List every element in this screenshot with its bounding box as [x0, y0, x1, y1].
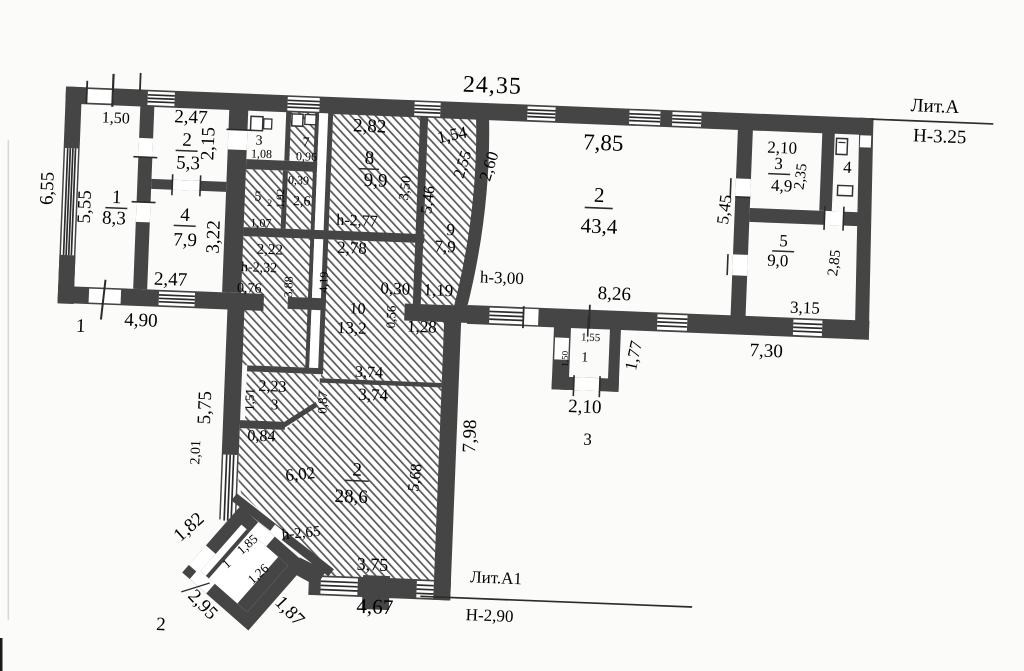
- svg-text:2: 2: [352, 460, 362, 481]
- svg-text:1,50: 1,50: [559, 350, 570, 367]
- svg-text:2,01: 2,01: [188, 440, 204, 465]
- svg-text:3,75: 3,75: [356, 554, 388, 575]
- svg-text:2,10: 2,10: [568, 396, 602, 418]
- svg-text:8,26: 8,26: [597, 283, 631, 305]
- svg-text:0,87: 0,87: [314, 390, 330, 414]
- svg-text:4: 4: [180, 205, 191, 226]
- svg-text:13,2: 13,2: [337, 318, 367, 338]
- svg-text:7,98: 7,98: [459, 419, 481, 453]
- svg-text:3,88: 3,88: [281, 276, 296, 298]
- svg-text:5,75: 5,75: [194, 391, 216, 425]
- svg-text:1,55: 1,55: [581, 331, 601, 344]
- svg-text:7,85: 7,85: [583, 129, 624, 156]
- svg-text:2,47: 2,47: [154, 269, 188, 291]
- svg-text:4: 4: [843, 158, 853, 177]
- svg-text:Н-3.25: Н-3.25: [913, 125, 967, 148]
- svg-text:5,55: 5,55: [74, 190, 96, 224]
- svg-text:Н-2,90: Н-2,90: [465, 605, 513, 626]
- svg-text:Лит.А1: Лит.А1: [470, 567, 523, 588]
- svg-text:5,45: 5,45: [713, 194, 736, 226]
- svg-text:5,46: 5,46: [418, 185, 438, 215]
- svg-text:3: 3: [774, 154, 783, 173]
- svg-text:5: 5: [779, 231, 788, 250]
- svg-text:6,55: 6,55: [36, 171, 58, 205]
- svg-text:1: 1: [581, 350, 589, 365]
- svg-text:6,02: 6,02: [285, 463, 317, 485]
- svg-text:1,07: 1,07: [250, 215, 272, 230]
- svg-text:7,9: 7,9: [173, 229, 198, 251]
- svg-text:0,39: 0,39: [288, 173, 310, 188]
- svg-text:0,30: 0,30: [380, 279, 410, 299]
- svg-text:2: 2: [182, 130, 192, 151]
- svg-text:8: 8: [364, 148, 374, 169]
- svg-text:4,67: 4,67: [356, 594, 394, 619]
- svg-text:2: 2: [593, 183, 604, 207]
- svg-text:2,47: 2,47: [174, 106, 208, 128]
- svg-text:3,22: 3,22: [203, 220, 225, 254]
- svg-text:10: 10: [349, 300, 366, 318]
- svg-text:1,50: 1,50: [102, 109, 131, 127]
- svg-text:h-2,32: h-2,32: [241, 260, 278, 276]
- svg-text:7,30: 7,30: [749, 340, 783, 362]
- svg-text:0,84: 0,84: [247, 427, 276, 445]
- svg-text:4,9: 4,9: [771, 176, 793, 196]
- svg-text:1,08: 1,08: [251, 146, 273, 161]
- svg-text:2,82: 2,82: [353, 115, 387, 137]
- svg-text:1: 1: [75, 316, 85, 337]
- svg-text:2: 2: [267, 198, 272, 209]
- svg-text:9,0: 9,0: [767, 251, 789, 271]
- svg-text:h-3,00: h-3,00: [480, 267, 525, 288]
- svg-text:2,85: 2,85: [825, 249, 844, 277]
- svg-text:2,22: 2,22: [256, 242, 283, 259]
- svg-text:43,4: 43,4: [580, 213, 618, 238]
- svg-text:28,6: 28,6: [334, 486, 368, 508]
- svg-text:7: 7: [302, 135, 310, 150]
- svg-text:2,6: 2,6: [293, 194, 311, 210]
- svg-text:2,15: 2,15: [197, 127, 219, 161]
- svg-text:2,35: 2,35: [792, 163, 811, 191]
- svg-text:3: 3: [583, 430, 592, 449]
- svg-text:3: 3: [271, 397, 279, 413]
- svg-text:1,51: 1,51: [241, 388, 257, 411]
- svg-text:3,50: 3,50: [397, 175, 415, 201]
- svg-text:1,28: 1,28: [407, 317, 437, 337]
- svg-text:1,19: 1,19: [423, 280, 453, 300]
- svg-text:3,74: 3,74: [355, 364, 384, 382]
- svg-text:0,56: 0,56: [383, 305, 399, 329]
- svg-text:8,3: 8,3: [102, 208, 127, 230]
- svg-text:9,9: 9,9: [363, 170, 388, 192]
- svg-text:3,15: 3,15: [790, 298, 820, 318]
- svg-text:24,35: 24,35: [462, 72, 522, 100]
- svg-text:2,23: 2,23: [258, 378, 287, 396]
- svg-text:2,78: 2,78: [337, 238, 367, 258]
- svg-text:4,19: 4,19: [316, 271, 331, 293]
- svg-text:7,9: 7,9: [434, 237, 456, 257]
- svg-text:5,68: 5,68: [405, 463, 425, 493]
- svg-text:4,90: 4,90: [124, 309, 158, 331]
- svg-text:0,76: 0,76: [237, 281, 262, 297]
- svg-text:1: 1: [112, 187, 122, 208]
- svg-text:h-2,77: h-2,77: [336, 212, 378, 231]
- svg-text:3,74: 3,74: [358, 385, 389, 405]
- svg-text:2: 2: [156, 614, 166, 635]
- svg-text:Лит.А: Лит.А: [910, 95, 959, 118]
- svg-text:1,92: 1,92: [274, 189, 287, 209]
- svg-text:0,96: 0,96: [296, 149, 318, 164]
- svg-text:5: 5: [254, 189, 262, 204]
